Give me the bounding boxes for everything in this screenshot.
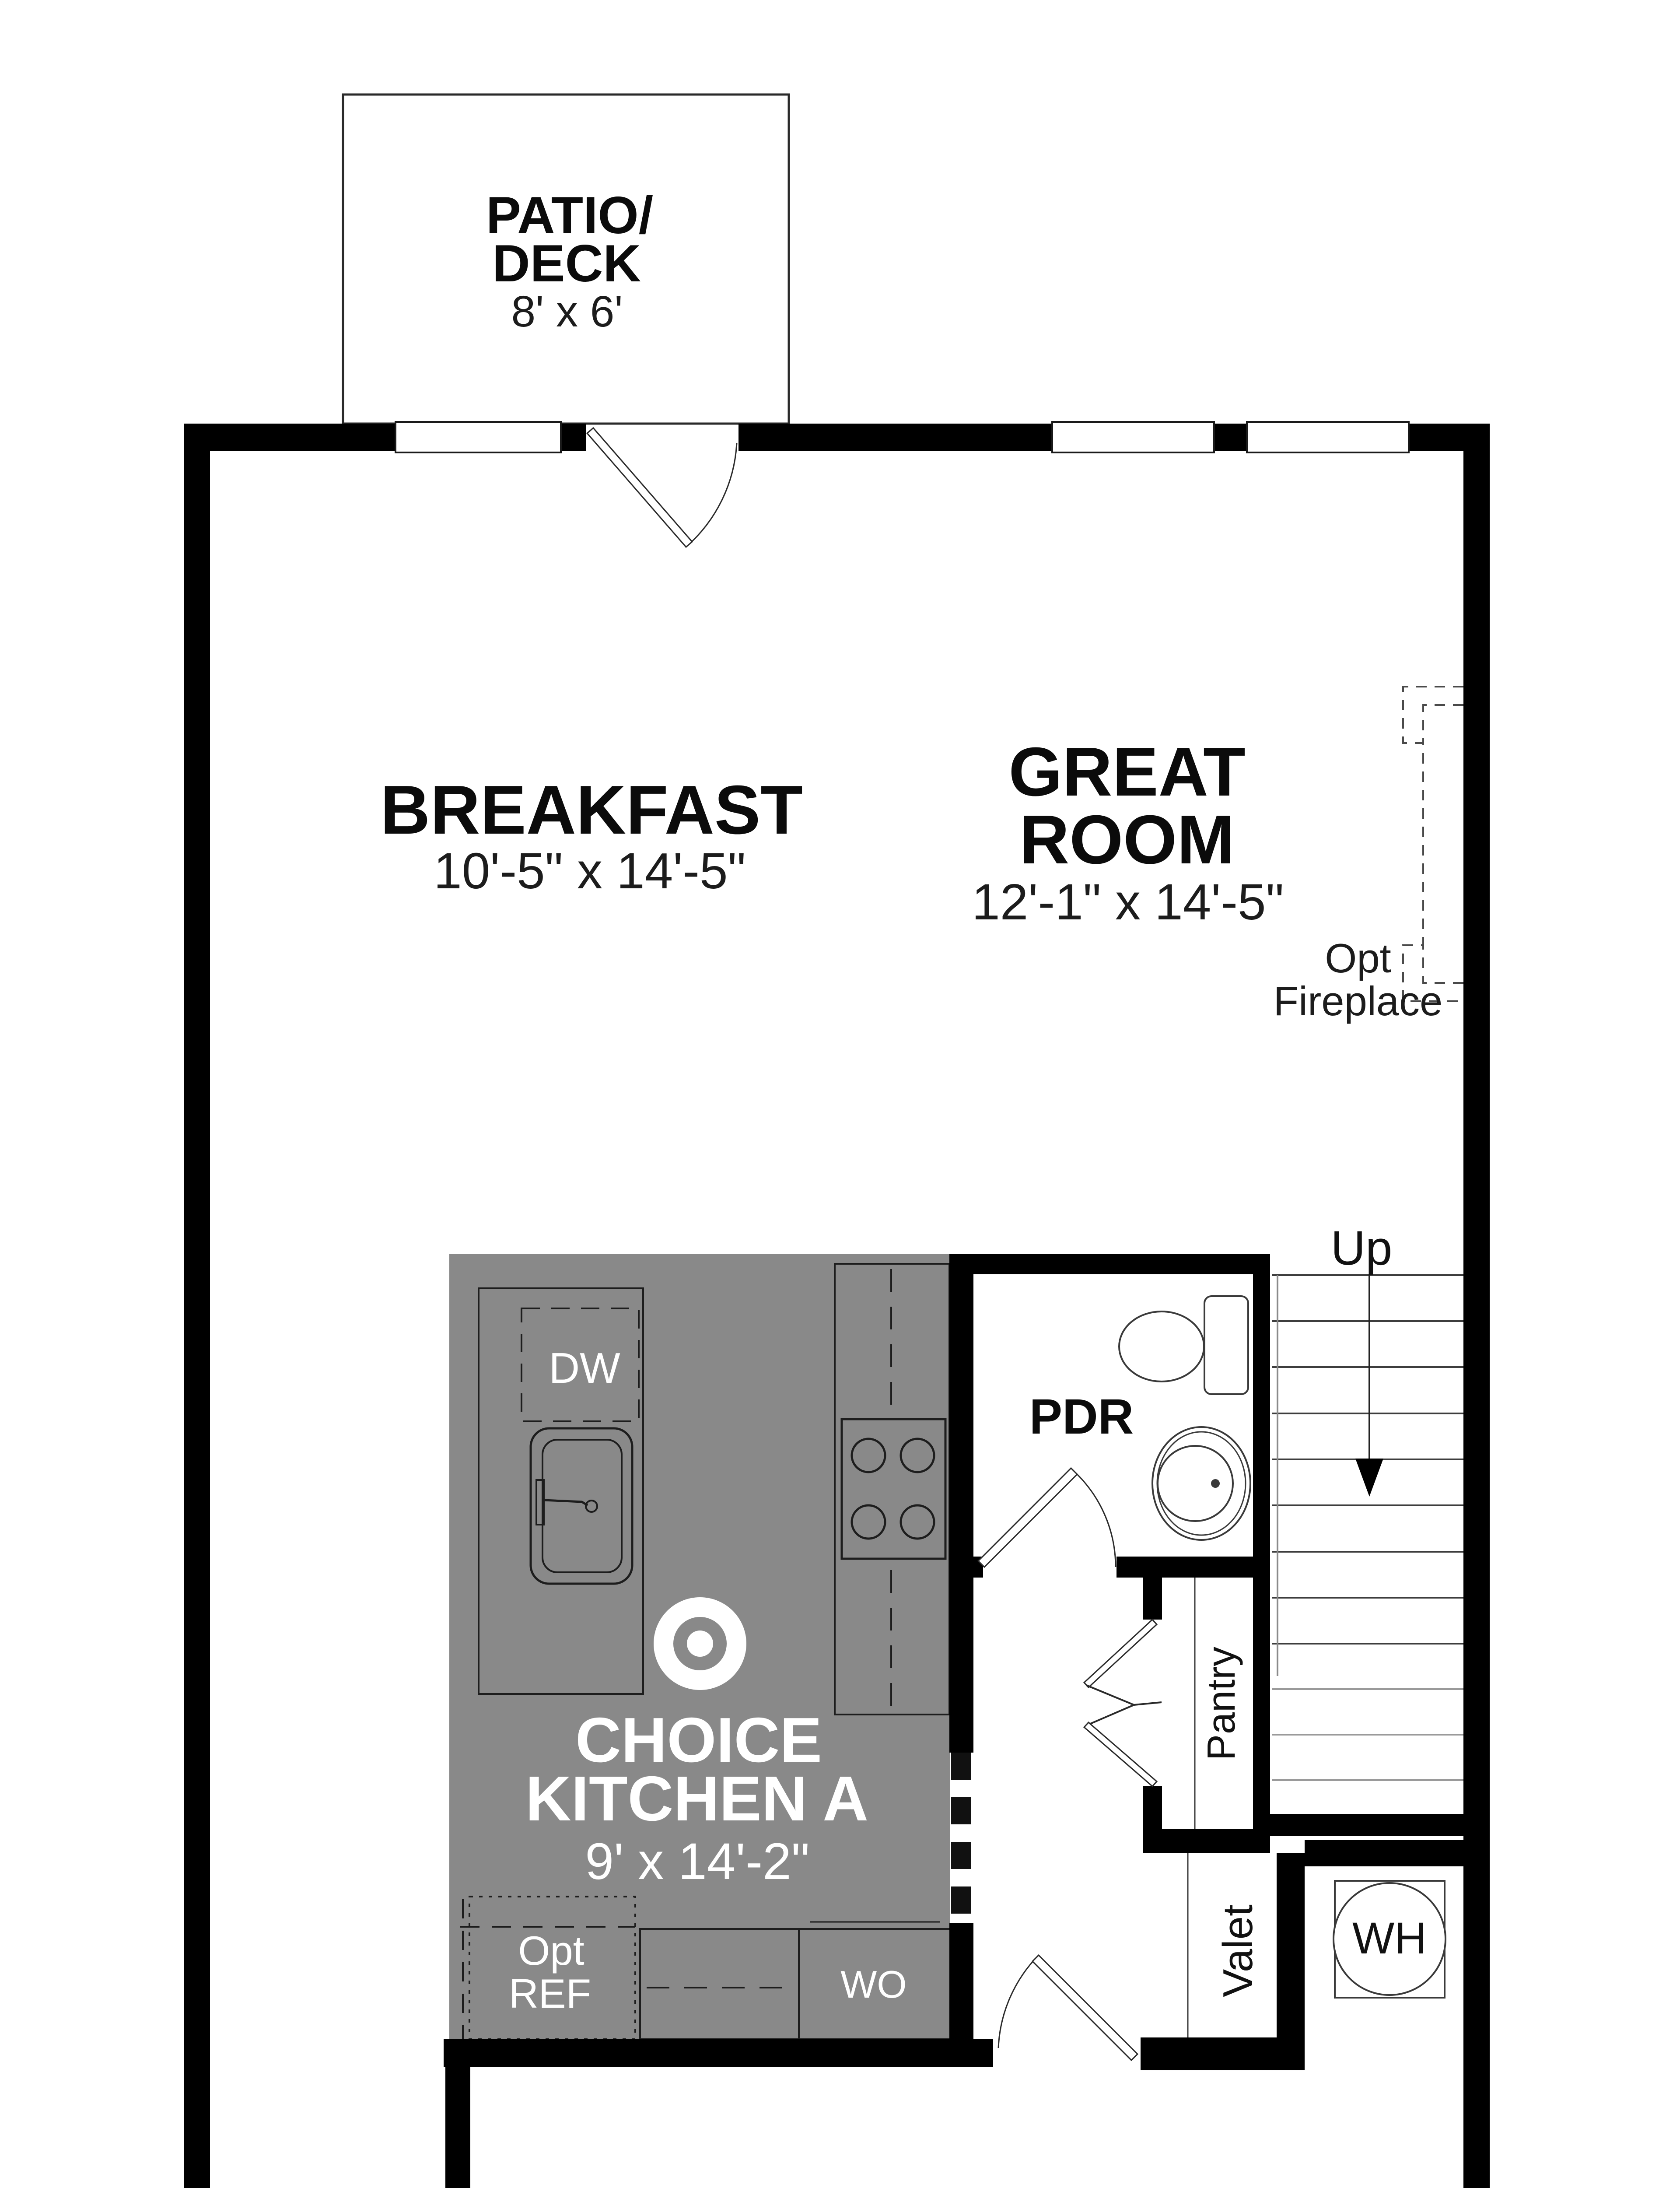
svg-text:9' x 14'-2": 9' x 14'-2" bbox=[585, 1833, 809, 1890]
svg-text:GREAT: GREAT bbox=[1008, 733, 1245, 810]
svg-text:10'-5" x 14'-5": 10'-5" x 14'-5" bbox=[434, 842, 745, 899]
svg-text:Valet: Valet bbox=[1214, 1904, 1261, 1997]
svg-text:WH: WH bbox=[1352, 1913, 1427, 1963]
svg-text:Opt: Opt bbox=[1325, 935, 1391, 981]
svg-text:ROOM: ROOM bbox=[1019, 801, 1235, 878]
svg-text:DW: DW bbox=[549, 1344, 620, 1392]
svg-text:BREAKFAST: BREAKFAST bbox=[380, 771, 803, 849]
svg-text:PDR: PDR bbox=[1029, 1389, 1134, 1444]
svg-text:12'-1" x 14'-5": 12'-1" x 14'-5" bbox=[972, 873, 1284, 930]
svg-text:DECK: DECK bbox=[492, 234, 641, 293]
svg-text:KITCHEN A: KITCHEN A bbox=[525, 1763, 868, 1834]
svg-text:WO: WO bbox=[840, 1963, 907, 2006]
svg-text:REF: REF bbox=[509, 1971, 591, 2016]
svg-text:Pantry: Pantry bbox=[1200, 1647, 1243, 1760]
svg-text:Opt: Opt bbox=[518, 1928, 584, 1974]
svg-text:Fireplace: Fireplace bbox=[1274, 978, 1443, 1024]
svg-text:8' x 6': 8' x 6' bbox=[511, 287, 623, 336]
svg-text:Up: Up bbox=[1331, 1221, 1393, 1275]
